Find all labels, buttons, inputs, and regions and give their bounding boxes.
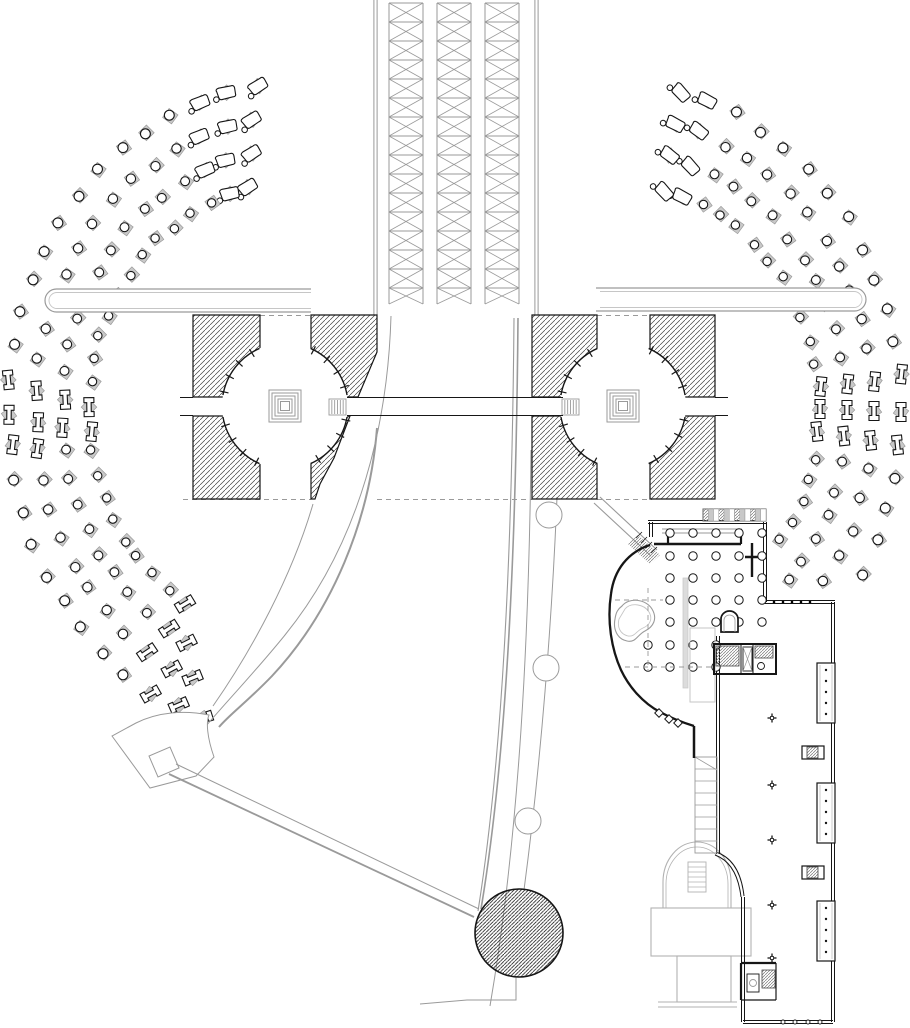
planting-marker [807,357,822,372]
planting-marker [7,471,23,487]
planting-marker [84,422,99,442]
planting-marker [760,253,776,269]
planting-marker [183,126,210,149]
planting-marker [139,125,155,141]
planting-marker [210,83,237,104]
planting-marker [184,92,211,115]
planting-marker [809,451,825,467]
planting-marker [659,113,686,134]
planting-marker [840,374,855,394]
planting-marker [40,569,56,585]
planting-marker [666,78,693,104]
planting-marker [86,375,101,390]
planting-marker [116,625,132,641]
planting-marker [30,352,45,367]
planting-marker [149,157,165,173]
promenade-bar-right [596,288,866,311]
planting-marker [81,580,96,595]
planting-marker [81,398,97,417]
planting-marker [649,177,676,203]
planting-marker [740,151,755,166]
planting-marker [174,595,195,613]
planting-marker [69,558,85,574]
planting-marker [856,242,871,257]
planting-marker [820,233,835,248]
planting-marker [212,117,239,138]
planting-marker [809,273,824,288]
planting-marker [822,508,837,523]
planting-marker [890,435,905,455]
planting-marker [106,512,121,527]
planting-marker [719,138,735,154]
planting-marker [58,364,73,379]
planting-marker [8,338,23,353]
planting-marker [205,195,220,210]
planting-marker [71,241,86,256]
planting-marker [38,245,53,260]
planting-marker [893,403,908,422]
planting-marker [832,258,848,274]
planting-marker [812,400,827,419]
planting-marker [145,566,160,581]
planting-marker [61,337,76,352]
planting-marker [729,218,744,233]
planting-marker [727,179,742,194]
planting-marker [96,645,112,661]
planting-marker [236,109,263,135]
planting-marker [829,321,845,337]
planting-marker [140,604,156,620]
planting-marker [163,582,179,598]
planting-marker [29,381,45,401]
planting-marker [168,697,189,714]
planting-marker [748,237,763,252]
planting-marker [766,209,781,224]
planting-marker [867,372,882,392]
planting-marker [236,142,263,168]
planting-marker [158,619,179,638]
planting-marker [13,304,28,319]
planting-marker [243,75,270,101]
planting-marker [784,185,800,201]
planting-marker [39,321,54,336]
planting-marker [821,184,837,200]
planting-marker [862,462,877,477]
planting-marker [1,405,16,424]
planting-marker [182,670,203,686]
planting-marker [124,171,139,186]
planting-marker [871,532,886,547]
planting-marker [57,390,73,409]
planting-marker [863,430,879,450]
planting-marker [118,221,133,236]
planting-marker [119,533,135,549]
planting-marker [87,351,102,366]
planting-marker [839,401,855,420]
planting-marker [31,413,46,432]
planting-marker [37,472,53,488]
planting-marker [140,685,161,703]
planting-marker [894,364,910,384]
planting-marker [83,522,98,537]
building-complex [609,509,835,1024]
planting-marker [161,660,182,678]
planting-marker [786,514,802,530]
planting-marker [54,531,69,546]
planting-marker [804,335,819,350]
planting-marker [116,667,131,682]
planting-marker [783,573,798,588]
planting-marker [26,271,42,287]
planting-marker [853,490,868,505]
planting-marker [104,242,120,258]
planting-marker [106,192,121,207]
planting-marker [168,220,184,236]
planting-marker [178,175,193,190]
planting-marker [55,418,70,438]
planting-marker [855,311,870,326]
planting-marker [773,533,788,548]
planting-marker [697,197,712,212]
planting-marker [745,193,761,209]
planting-marker [71,497,86,512]
planting-marker [833,351,848,366]
planting-marker [91,327,107,343]
planting-marker [798,252,814,268]
planting-marker [813,377,829,397]
hatched-plaza-circle [475,889,563,977]
planting-marker [881,302,896,317]
planting-marker [794,553,810,569]
planting-marker [797,494,812,509]
planting-marker [136,643,157,662]
planting-marker [74,620,89,635]
chapel-underlay [651,842,751,1007]
planting-marker [163,109,178,124]
planting-marker [17,505,32,520]
planting-marker [846,523,862,539]
planting-marker [189,159,216,182]
planting-marker [60,268,75,283]
planting-marker [801,206,816,221]
planting-marker [42,502,57,517]
planting-marker [155,189,171,205]
planting-marker [754,124,770,140]
planting-marker [802,473,817,488]
planting-marker [100,490,115,505]
planting-marker [85,215,101,231]
planting-marker [129,548,144,563]
planting-marker [91,467,107,483]
truss-bridge [374,0,538,315]
planting-marker [760,167,775,182]
planting-marker [108,564,123,579]
planting-marker [683,118,710,141]
planting-marker [72,188,88,204]
planting-marker [116,140,131,155]
planting-marker [84,443,99,458]
planting-marker [809,531,824,546]
planting-marker [121,585,136,600]
planting-marker [860,340,876,356]
planting-marker [836,426,851,446]
planting-marker [866,402,881,421]
ramp-southwest [169,764,479,917]
drawing-root [0,0,910,1028]
planting-marker [136,248,151,263]
planting-marker [879,501,894,516]
planting-marker [51,215,66,230]
planting-marker [138,201,153,216]
ramp-northeast [594,497,660,564]
planting-marker [888,470,904,486]
site-plan-canvas [0,0,910,1028]
planting-marker [124,267,140,283]
planting-marker [867,271,883,287]
planting-marker [100,603,115,618]
planting-marker [183,207,198,222]
planting-marker [170,142,185,157]
planting-marker [691,89,718,110]
planting-marker [856,566,872,582]
planting-marker [713,206,729,222]
planting-marker [809,422,824,442]
planting-marker [842,210,857,225]
planting-marker [1,370,17,390]
promenade-bar-left [45,289,311,312]
planting-marker [5,435,20,455]
planting-marker [24,538,39,553]
wedge-plaza [112,712,214,788]
pavilion-west [193,315,377,499]
pavilion-east [532,315,715,499]
planting-marker [93,265,108,280]
planting-marker [59,443,74,458]
planting-marker [816,573,831,588]
planting-marker [827,484,843,500]
planting-marker [776,141,791,156]
planting-marker [148,231,163,246]
planting-marker [802,162,817,177]
planting-marker [886,334,901,349]
planting-marker [777,270,792,285]
planting-marker [835,454,850,469]
planting-marker [730,104,745,119]
planting-marker [30,438,45,458]
planting-marker [176,634,197,651]
planting-marker [61,470,77,486]
planting-marker [58,593,73,608]
planting-marker [781,232,796,247]
planting-marker [708,168,723,183]
planting-marker [833,549,848,564]
planting-marker [92,547,108,563]
planting-marker [91,162,106,177]
